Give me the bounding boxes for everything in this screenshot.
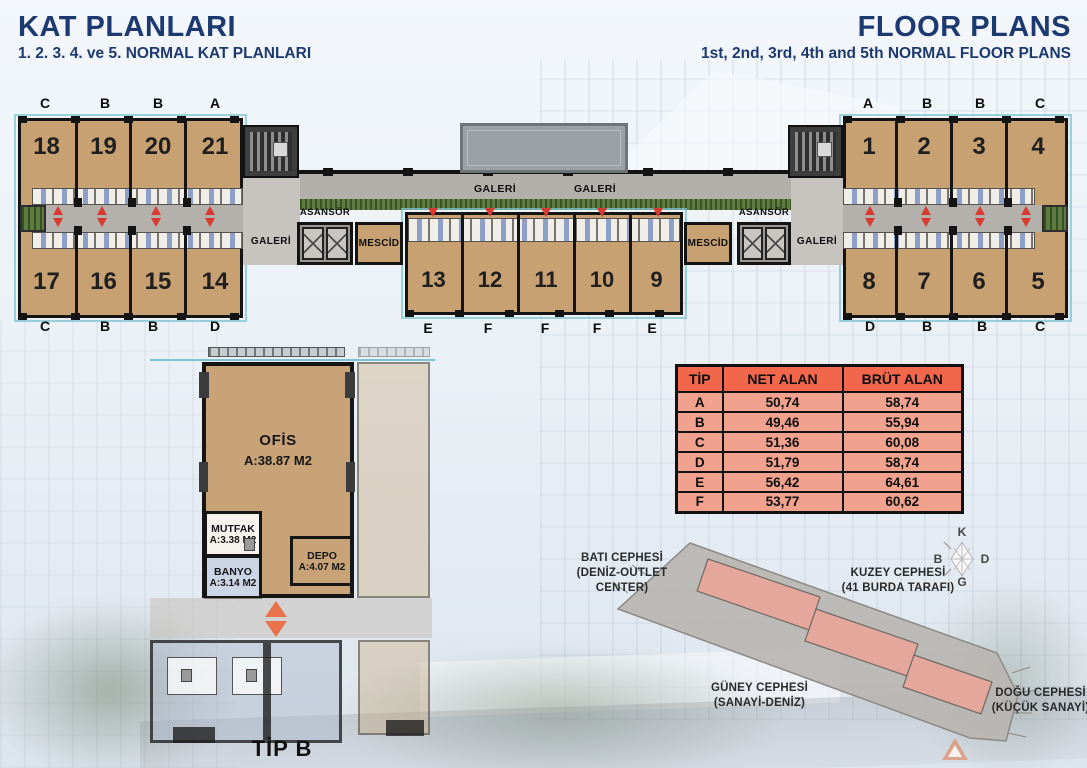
unit-cell-right_wing-bottom-3: 5 [1008,232,1068,318]
compass-west-label: B [934,552,943,566]
fixture-icon [181,669,192,682]
type-letter-bottom: C [1028,318,1052,334]
main-title-tr: KAT PLANLARI [18,12,311,42]
elevator-cab-icon [302,227,324,260]
tipb-corridor [150,598,432,638]
corridor-wall-column [894,198,902,207]
unit-cell-middle-2: 11 [518,258,574,302]
corridor-direction-arrows [97,206,107,227]
compass-north-label: K [958,525,967,539]
area-table-cell: 50,74 [723,392,843,412]
compass-rose: K B D G [930,524,994,588]
galeri-label-top-1: GALERİ [458,183,532,195]
arrow-down-icon [151,218,161,227]
galeri-label-left-side: GALERİ [245,236,297,247]
facade-label-west: BATI CEPHESİ (DENİZ-OUTLET CENTER) [552,551,692,596]
brochure-page: KAT PLANLARI 1. 2. 3. 4. ve 5. NORMAL KA… [0,0,1087,768]
arrow-down-icon [97,218,107,227]
type-letter-middle: E [640,320,664,336]
area-table-header: TİPNET ALANBRÜT ALAN [677,366,963,393]
tipb-neighbor-bottom-left [150,640,342,743]
unit-cell-left_wing-bottom-2: 15 [132,232,187,318]
area-table-cell: B [677,412,723,432]
arrow-down-icon [53,218,63,227]
left-stairwell [243,125,299,178]
corridor-direction-arrows [865,206,875,227]
unit-cell-right_wing-bottom-1: 7 [898,232,953,318]
arrow-down-icon [1021,218,1031,227]
left-elevator [297,222,353,265]
kitchen-name: MUTFAK [211,523,255,535]
wall-column [346,462,355,492]
facade-label-south: GÜNEY CEPHESİ (SANAYİ-DENİZ) [692,681,827,711]
tipb-bathroom-room: BANYO A:3.14 M2 [204,555,262,599]
wall-column [345,372,355,398]
facade-west-subtitle: (DENİZ-OUTLET CENTER) [552,566,692,596]
unit-number: 3 [972,133,985,205]
type-letter-bottom: B [93,318,117,334]
facade-east-subtitle: (KÜÇÜK SANAYİ) [988,701,1087,716]
area-table-cell: 60,08 [843,432,963,452]
unit-number: 8 [862,268,875,318]
corridor-wall-column [183,226,191,235]
type-letter-middle: E [416,320,440,336]
right-core-connector [791,178,843,265]
facade-south-title: GÜNEY CEPHESİ [692,681,827,696]
arrow-up-icon [97,206,107,215]
area-table-cell: F [677,492,723,512]
unit-cell-left_wing-top-1: 19 [78,118,132,205]
storage-area: A:4.07 M2 [299,562,346,573]
corridor-wall-column [949,226,957,235]
area-table-body: A50,7458,74B49,4655,94C51,3660,08D51,795… [677,392,963,512]
entrance-arrow [428,208,438,217]
unit-cell-middle-3: 10 [574,258,630,302]
right-corridor-planter [1042,205,1068,232]
tipb-window-band [208,347,345,357]
right-stairwell [788,125,843,178]
facade-label-east: DOĞU CEPHESİ (KÜÇÜK SANAYİ) [988,686,1087,716]
arrow-up-icon [975,206,985,215]
galeri-label-right-side: GALERİ [792,236,842,247]
main-subtitle-en: 1st, 2nd, 3rd, 4th and 5th NORMAL FLOOR … [701,45,1071,63]
area-table-cell: A [677,392,723,412]
corridor-direction-arrows [921,206,931,227]
area-table-row: F53,7760,62 [677,492,963,512]
page-title-turkish: KAT PLANLARI 1. 2. 3. 4. ve 5. NORMAL KA… [18,12,311,63]
left-core-connector [243,178,300,265]
unit-number: 14 [202,268,229,318]
galeri-label-top-2: GALERİ [558,183,632,195]
entrance-arrow [541,208,551,217]
area-table-header-cell: NET ALAN [723,366,843,393]
unit-number: 7 [917,268,930,318]
unit-number: 15 [145,268,172,318]
tipb-neighbor-right [357,362,430,598]
unit-cell-left_wing-bottom-0: 17 [18,232,78,318]
area-table-cell: 49,46 [723,412,843,432]
right-mescid-room: MESCİD [684,222,732,265]
type-letter-top: C [1028,95,1052,111]
area-table-cell: 51,36 [723,432,843,452]
mescid-label: MESCİD [688,238,729,249]
arrow-down-icon [428,208,438,217]
unit-number: 6 [972,268,985,318]
page-title-english: FLOOR PLANS 1st, 2nd, 3rd, 4th and 5th N… [701,12,1071,63]
area-table-row: C51,3660,08 [677,432,963,452]
office-room-label: OFİS A:38.87 M2 [217,432,339,468]
left-corridor-planter [20,205,46,232]
facade-west-title: BATI CEPHESİ [552,551,692,566]
corridor-arrow-down-icon [265,621,287,637]
corridor-wall-column [74,226,82,235]
unit-cell-left_wing-top-0: 18 [18,118,78,205]
unit-number: 1 [862,133,875,205]
type-letter-middle: F [585,320,609,336]
main-subtitle-tr: 1. 2. 3. 4. ve 5. NORMAL KAT PLANLARI [18,45,311,63]
tipb-kitchen-room: MUTFAK A:3.38 M2 [204,511,262,557]
type-letter-top: B [915,95,939,111]
corridor-wall-column [74,198,82,207]
type-letter-top: A [203,95,227,111]
unit-number: 16 [90,268,117,318]
mescid-label: MESCİD [359,238,400,249]
area-table-cell: 60,62 [843,492,963,512]
unit-number: 13 [421,267,445,293]
type-letter-bottom: D [203,318,227,334]
asansor-label-right: ASANSÖR [733,207,795,218]
unit-cell-left_wing-bottom-3: 14 [187,232,243,318]
area-table-row: E56,4264,61 [677,472,963,492]
corridor-wall-column [1004,226,1012,235]
unit-number: 10 [590,267,614,293]
unit-cell-middle-4: 9 [630,258,683,302]
type-letter-top: B [968,95,992,111]
unit-number: 4 [1031,133,1044,205]
unit-cell-left_wing-top-3: 21 [187,118,243,205]
arrow-down-icon [975,218,985,227]
fixture-icon [246,669,257,682]
unit-cell-right_wing-top-2: 3 [953,118,1008,205]
unit-number: 5 [1031,268,1044,318]
unit-number: 18 [33,133,60,205]
area-table-cell: 53,77 [723,492,843,512]
tipb-storage-room: DEPO A:4.07 M2 [290,536,354,586]
type-letter-bottom: B [141,318,165,334]
left-mescid-room: MESCİD [355,222,403,265]
area-table: TİPNET ALANBRÜT ALAN A50,7458,74B49,4655… [675,364,964,514]
wall-column [199,462,208,492]
tipb-neighbor-bottom-right [358,640,430,735]
type-letter-top: C [33,95,57,111]
right-elevator [737,222,791,265]
unit-cell-right_wing-bottom-2: 6 [953,232,1008,318]
office-area: A:38.87 M2 [217,453,339,468]
main-title-en: FLOOR PLANS [701,12,1071,42]
corridor-direction-arrows [53,206,63,227]
storage-name: DEPO [307,550,337,562]
unit-number: 12 [478,267,502,293]
facade-east-title: DOĞU CEPHESİ [988,686,1087,701]
unit-number: 2 [917,133,930,205]
compass-east-label: D [981,552,990,566]
unit-number: 20 [145,133,172,205]
arrow-down-icon [597,208,607,217]
arrow-down-icon [485,208,495,217]
area-table-cell: 51,79 [723,452,843,472]
unit-divider-wall [573,215,576,312]
unit-number: 11 [534,267,557,293]
bathroom-name: BANYO [214,566,252,578]
corridor-direction-arrows [1021,206,1031,227]
arrow-up-icon [151,206,161,215]
unit-divider-wall [517,215,520,312]
corridor-arrow-up-icon [265,601,287,617]
entrance-arrow [597,208,607,217]
entrance-arrow [485,208,495,217]
compass-south-label: G [957,575,966,588]
facade-south-subtitle: (SANAYİ-DENİZ) [692,696,827,711]
area-table-cell: 58,74 [843,392,963,412]
corridor-direction-arrows [151,206,161,227]
wall-column [199,372,209,398]
middle-modules [408,218,680,242]
arrow-down-icon [653,208,663,217]
corridor-direction-arrows [975,206,985,227]
area-table-row: A50,7458,74 [677,392,963,412]
corridor-direction-arrows [205,206,215,227]
arrow-up-icon [1021,206,1031,215]
area-table-cell: 55,94 [843,412,963,432]
arrow-down-icon [205,218,215,227]
arrow-down-icon [865,218,875,227]
area-table-cell: E [677,472,723,492]
arrow-down-icon [541,208,551,217]
unit-number: 9 [650,267,662,293]
type-letter-top: A [856,95,880,111]
arrow-up-icon [865,206,875,215]
roof-structure [460,123,628,173]
unit-cell-left_wing-bottom-1: 16 [78,232,132,318]
bathroom-area: A:3.14 M2 [210,578,257,589]
type-letter-top: B [146,95,170,111]
corridor-wall-column [894,226,902,235]
corridor-wall-column [128,198,136,207]
type-letter-middle: F [533,320,557,336]
area-table-cell: 58,74 [843,452,963,472]
unit-cell-right_wing-top-0: 1 [843,118,898,205]
arrow-up-icon [205,206,215,215]
elevator-cab-icon [765,227,786,260]
area-table-row: D51,7958,74 [677,452,963,472]
area-table-cell: C [677,432,723,452]
arrow-down-icon [921,218,931,227]
unit-cell-right_wing-top-1: 2 [898,118,953,205]
unit-number: 19 [90,133,117,205]
sink-icon [244,538,255,551]
corridor-wall-column [1004,198,1012,207]
unit-type-caption: TİP B [222,736,342,762]
type-letter-bottom: B [970,318,994,334]
area-table-cell: 64,61 [843,472,963,492]
type-letter-middle: F [476,320,500,336]
corridor-wall-column [183,198,191,207]
elevator-cab-icon [326,227,348,260]
unit-cell-middle-0: 13 [405,258,462,302]
area-table-cell: 56,42 [723,472,843,492]
office-name: OFİS [217,432,339,449]
unit-divider-wall [461,215,464,312]
unit-divider-wall [629,215,632,312]
arrow-up-icon [921,206,931,215]
arrow-up-icon [53,206,63,215]
unit-cell-right_wing-top-3: 4 [1008,118,1068,205]
area-table-header-cell: TİP [677,366,723,393]
type-letter-bottom: B [915,318,939,334]
area-table-header-cell: BRÜT ALAN [843,366,963,393]
unit-cell-right_wing-bottom-0: 8 [843,232,898,318]
unit-number: 21 [202,133,229,205]
type-letter-bottom: C [33,318,57,334]
entrance-arrow [653,208,663,217]
unit-cell-middle-1: 12 [462,258,518,302]
corridor-wall-column [949,198,957,207]
tipb-window-band-2 [358,347,430,357]
elevator-cab-icon [742,227,763,260]
unit-number: 17 [33,268,60,318]
type-letter-top: B [93,95,117,111]
corridor-wall-column [128,226,136,235]
area-table-row: B49,4655,94 [677,412,963,432]
tipb-facade-line [150,359,435,361]
unit-cell-left_wing-top-2: 20 [132,118,187,205]
area-table-cell: D [677,452,723,472]
type-letter-bottom: D [858,318,882,334]
asansor-label-left: ASANSÖR [294,207,356,218]
